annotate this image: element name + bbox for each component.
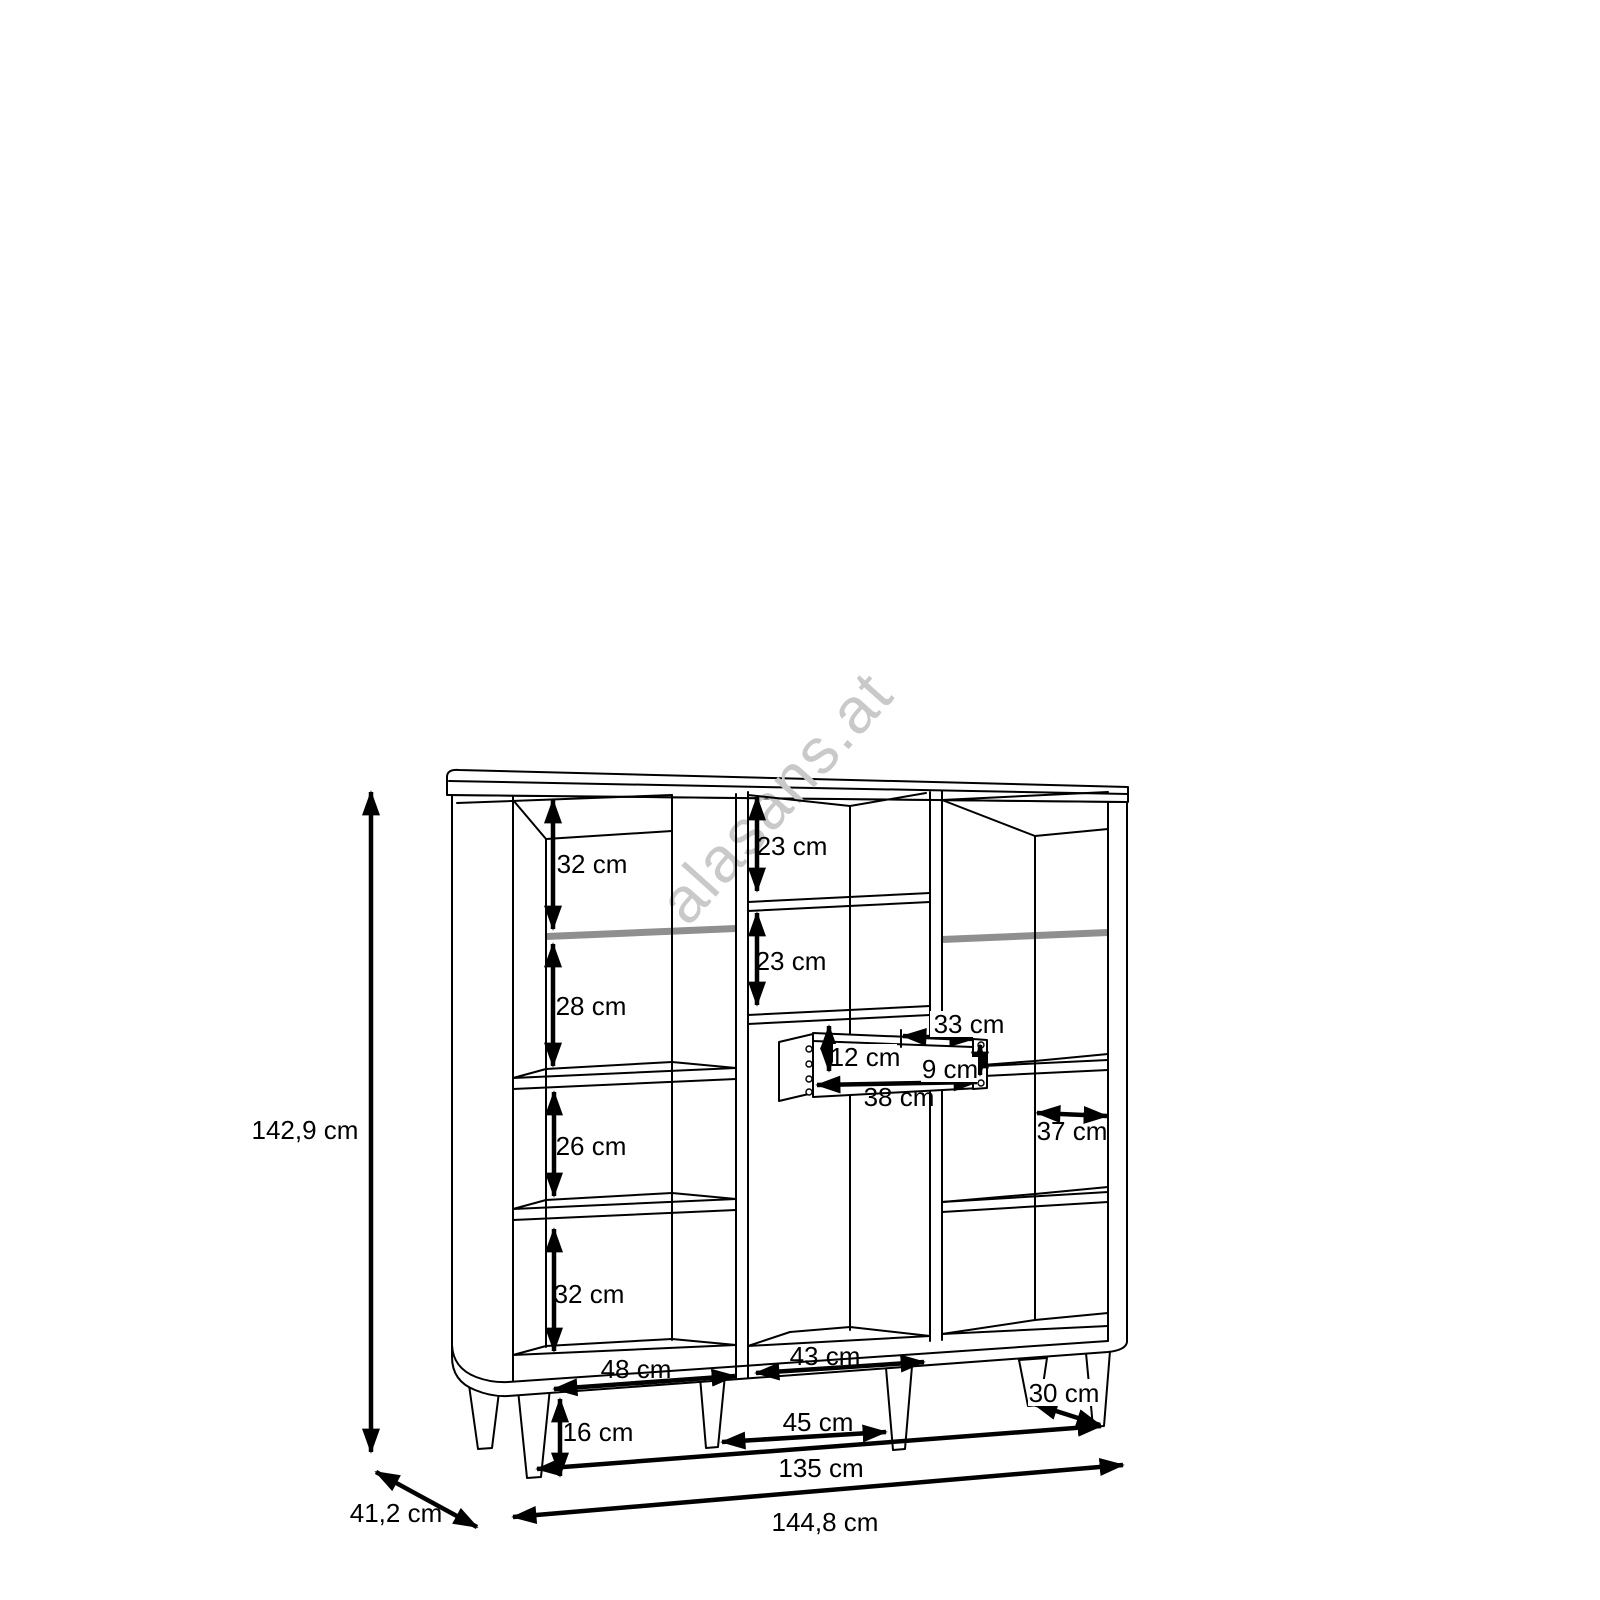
dimension-label-left-bay: 48 cm	[601, 1354, 672, 1384]
dimension-label-drawer-depth: 38 cm	[864, 1082, 935, 1112]
dimension-label-left-1: 32 cm	[557, 849, 628, 879]
dimension-label-middle-1: 23 cm	[757, 831, 828, 861]
dimension-label-left-4: 32 cm	[554, 1279, 625, 1309]
dimension-label-right-shelf: 37 cm	[1037, 1116, 1108, 1146]
dimension-label-middle-bay: 43 cm	[790, 1341, 861, 1371]
dimension-label-total-width: 144,8 cm	[772, 1507, 879, 1537]
dimension-label-inner-width: 135 cm	[778, 1453, 863, 1483]
dimension-label-drawer-side: 9 cm	[922, 1054, 978, 1084]
dimension-label-middle-2: 23 cm	[756, 946, 827, 976]
dimension-label-drawer-height: 12 cm	[830, 1042, 901, 1072]
dimension-label-middle-legs: 45 cm	[783, 1407, 854, 1437]
dimension-label-leg-height: 16 cm	[563, 1417, 634, 1447]
dimension-label-right-legs: 30 cm	[1029, 1378, 1100, 1408]
dimension-label-drawer-width: 33 cm	[934, 1009, 1005, 1039]
furniture-dimension-page: alasans.at	[0, 0, 1600, 1600]
furniture-dimension-diagram: alasans.at	[0, 0, 1600, 1600]
dimension-label-left-3: 26 cm	[556, 1131, 627, 1161]
dimension-label-total-depth: 41,2 cm	[350, 1498, 443, 1528]
dimension-label-total-height: 142,9 cm	[252, 1115, 359, 1145]
dimension-label-left-2: 28 cm	[556, 991, 627, 1021]
